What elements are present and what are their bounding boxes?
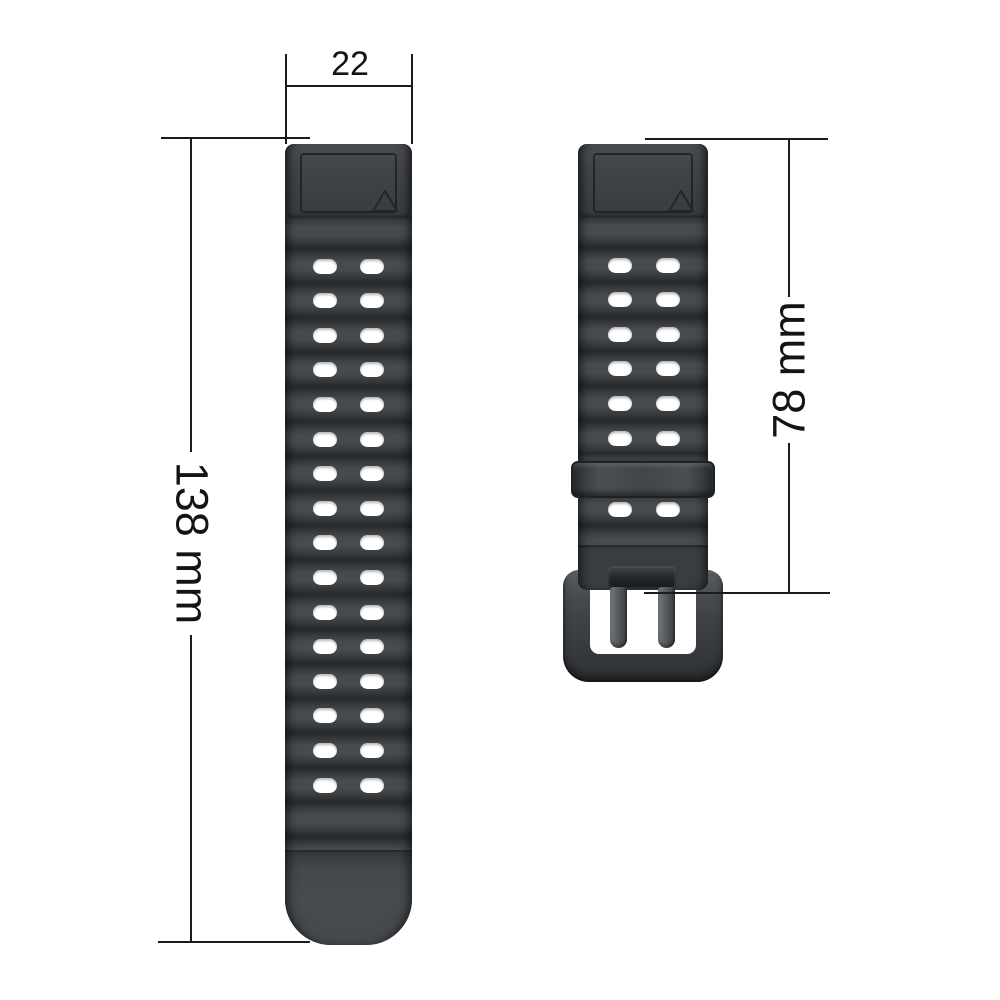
strap-hole <box>313 397 337 412</box>
band-width-label: 22 <box>287 47 413 81</box>
strap-hole <box>313 328 337 343</box>
strap-hole <box>360 293 384 308</box>
strap-hole <box>360 743 384 758</box>
strap-hole <box>360 605 384 620</box>
dimension-annotations: 22 138 mm 78 mm <box>0 0 1000 1000</box>
strap-hole <box>313 432 337 447</box>
strap-hole <box>360 708 384 723</box>
strap-hole <box>313 639 337 654</box>
strap-hole <box>313 535 337 550</box>
strap-hole <box>360 639 384 654</box>
short-length-tick-top <box>645 138 828 140</box>
strap-hole <box>313 778 337 793</box>
strap-hole <box>608 502 632 517</box>
strap-hole <box>360 397 384 412</box>
strap-hole <box>360 535 384 550</box>
long-length-tick-bottom <box>158 941 310 943</box>
strap-hole <box>313 259 337 274</box>
strap-hole <box>656 502 680 517</box>
long-length-label: 138 mm <box>170 462 215 625</box>
strap-hole <box>313 570 337 585</box>
strap-hole <box>360 328 384 343</box>
strap-hole <box>313 605 337 620</box>
short-band <box>578 144 708 689</box>
long-length-tick-top <box>161 137 310 139</box>
short-length-label: 78 mm <box>767 301 812 439</box>
short-length-dim-line-upper <box>788 138 790 297</box>
band-width-dim-line <box>286 85 413 87</box>
strap-hole <box>313 708 337 723</box>
strap-hole <box>313 674 337 689</box>
short-length-dim-line-lower <box>788 443 790 594</box>
strap-hole <box>360 259 384 274</box>
strap-hole <box>313 293 337 308</box>
short-band-holes-lower <box>578 144 708 689</box>
short-length-tick-bottom <box>644 592 830 594</box>
strap-hole <box>360 432 384 447</box>
diagram-canvas: 22 138 mm 78 mm <box>0 0 1000 1000</box>
strap-hole <box>313 501 337 516</box>
strap-hole <box>360 674 384 689</box>
strap-hole <box>313 743 337 758</box>
strap-hole <box>360 778 384 793</box>
strap-hole <box>313 466 337 481</box>
long-length-dim-line-upper <box>190 137 192 452</box>
strap-hole <box>313 362 337 377</box>
strap-hole <box>360 466 384 481</box>
strap-hole <box>360 362 384 377</box>
long-length-dim-line-lower <box>190 635 192 943</box>
strap-hole <box>360 570 384 585</box>
strap-hole <box>360 501 384 516</box>
